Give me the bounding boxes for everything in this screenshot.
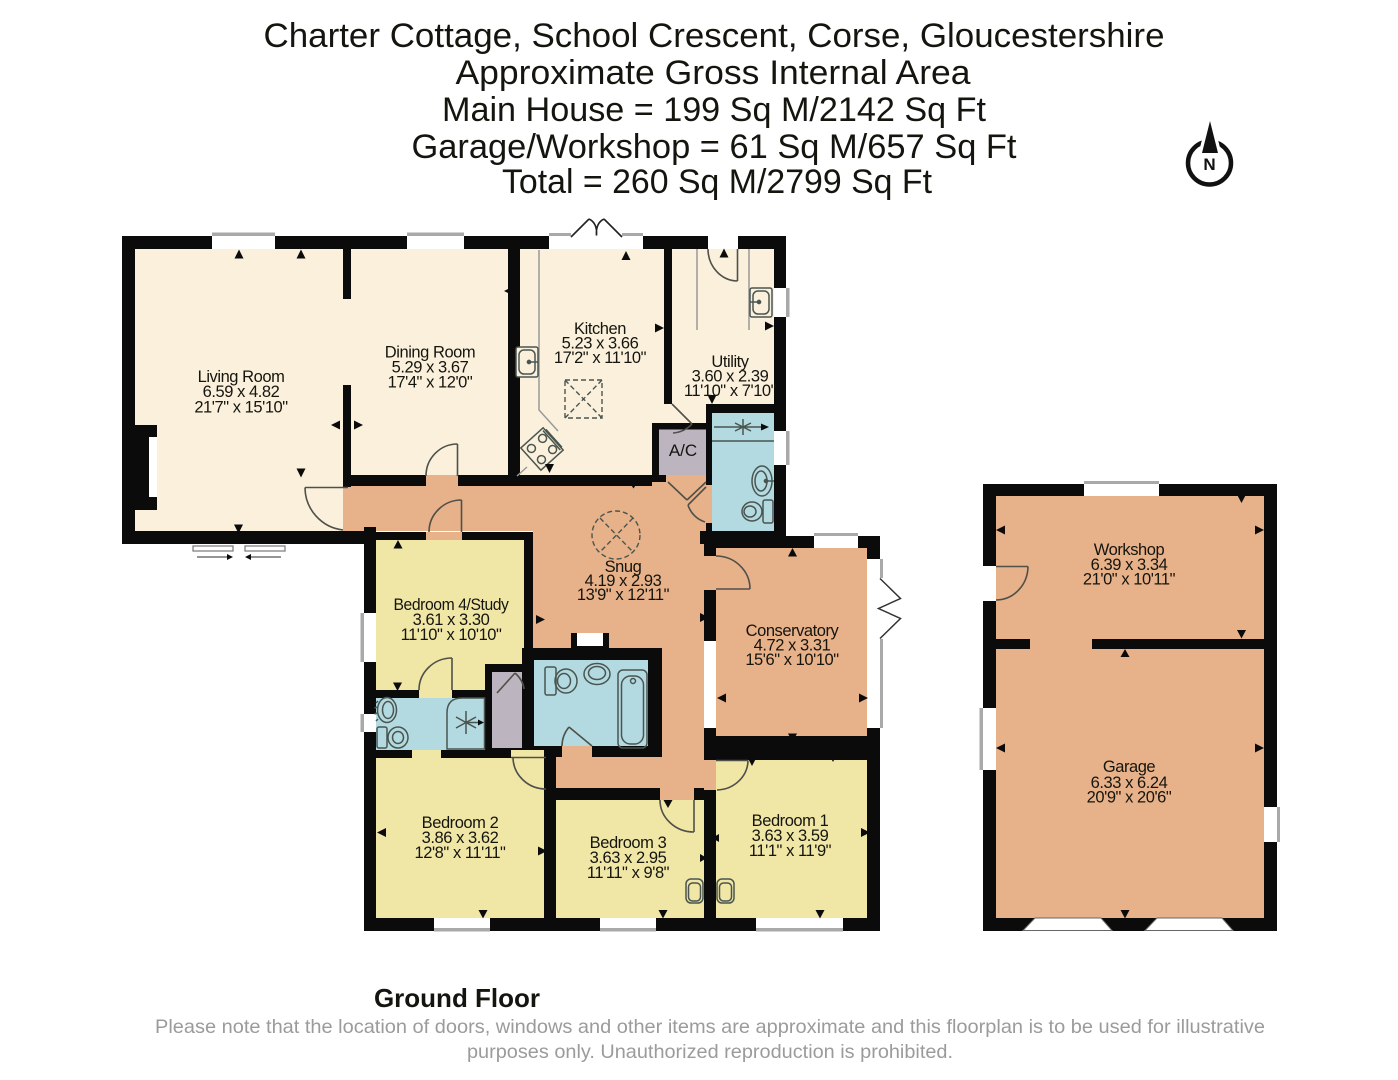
svg-text:Main House = 199 Sq M/2142 Sq: Main House = 199 Sq M/2142 Sq Ft: [442, 91, 987, 129]
svg-text:Please note that the location: Please note that the location of doors, …: [155, 1016, 1265, 1038]
svg-text:A/C: A/C: [669, 441, 697, 460]
svg-text:N: N: [1203, 155, 1215, 174]
svg-text:11'10" x 7'10": 11'10" x 7'10": [684, 382, 777, 400]
svg-text:21'7" x 15'10": 21'7" x 15'10": [194, 399, 288, 417]
svg-text:21'0" x 10'11": 21'0" x 10'11": [1083, 571, 1176, 589]
svg-text:purposes only. Unauthorized re: purposes only. Unauthorized reproduction…: [467, 1041, 953, 1063]
svg-text:Garage/Workshop = 61 Sq M/657: Garage/Workshop = 61 Sq M/657 Sq Ft: [412, 128, 1018, 166]
svg-text:Charter Cottage, School Cresce: Charter Cottage, School Crescent, Corse,…: [264, 17, 1165, 55]
svg-text:11'11" x 9'8": 11'11" x 9'8": [587, 864, 670, 882]
svg-text:Approximate Gross Internal Are: Approximate Gross Internal Area: [456, 54, 971, 92]
svg-text:15'6" x 10'10": 15'6" x 10'10": [745, 651, 839, 669]
svg-text:11'10" x 10'10": 11'10" x 10'10": [401, 626, 502, 644]
svg-text:20'9" x 20'6": 20'9" x 20'6": [1087, 789, 1172, 807]
svg-text:12'8" x 11'11": 12'8" x 11'11": [415, 844, 507, 862]
svg-text:11'1" x 11'9": 11'1" x 11'9": [749, 842, 832, 860]
svg-text:Total = 260 Sq M/2799 Sq Ft: Total = 260 Sq M/2799 Sq Ft: [502, 163, 933, 201]
svg-text:13'9" x 12'11": 13'9" x 12'11": [577, 586, 670, 604]
svg-text:Ground Floor: Ground Floor: [374, 983, 540, 1013]
svg-text:17'4" x 12'0": 17'4" x 12'0": [388, 374, 473, 392]
svg-text:17'2" x 11'10": 17'2" x 11'10": [554, 349, 647, 367]
